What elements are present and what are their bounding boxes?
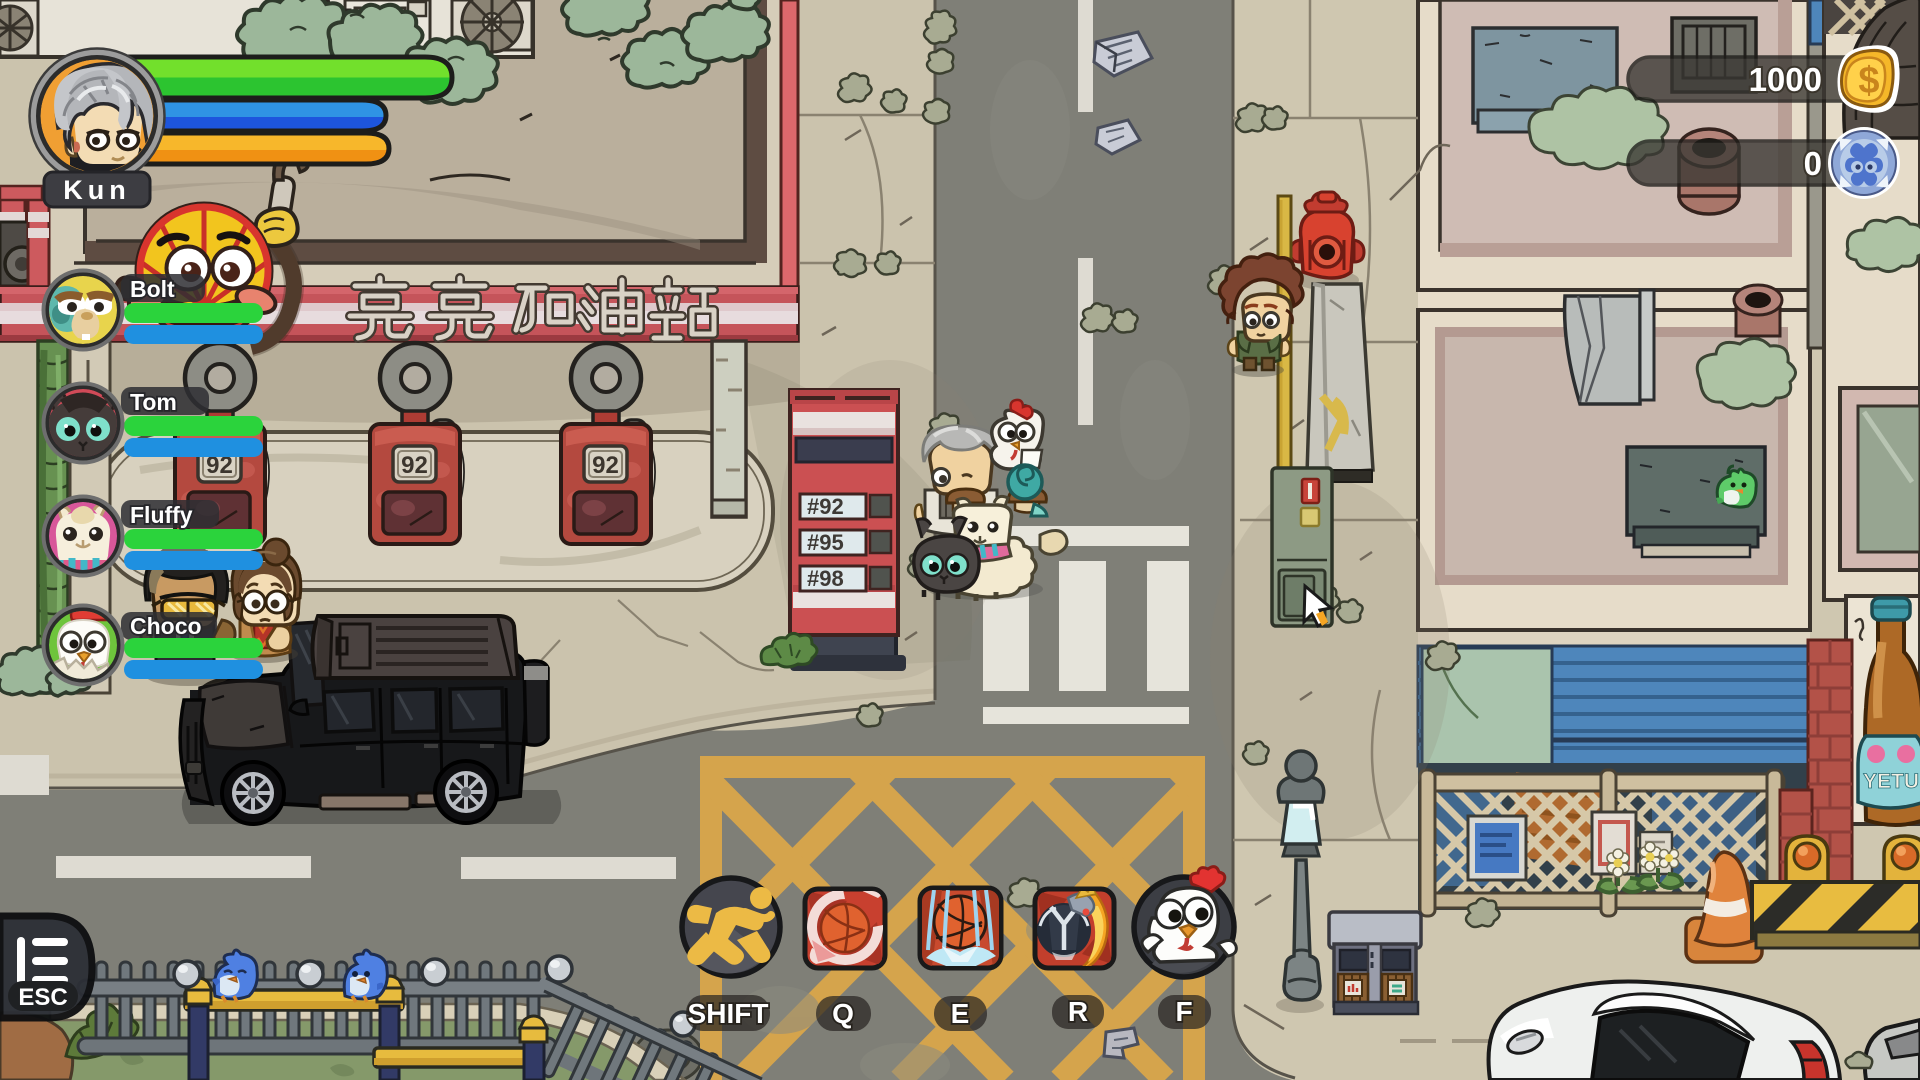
- svg-text:#92: #92: [807, 494, 844, 519]
- svg-text:R: R: [1068, 996, 1088, 1027]
- svg-text:Tom: Tom: [130, 389, 177, 415]
- svg-text:92: 92: [592, 452, 619, 479]
- svg-text:$: $: [1858, 60, 1879, 102]
- svg-text:0: 0: [1804, 145, 1822, 182]
- svg-text:YETU: YETU: [1863, 770, 1919, 793]
- svg-text:F: F: [1175, 996, 1192, 1027]
- svg-text:Bolt: Bolt: [130, 276, 175, 302]
- svg-text:ESC: ESC: [18, 984, 67, 1011]
- svg-text:Q: Q: [832, 998, 854, 1029]
- svg-text:#95: #95: [807, 530, 844, 555]
- svg-text:#98: #98: [807, 566, 844, 591]
- svg-text:Choco: Choco: [130, 613, 202, 639]
- svg-text:92: 92: [401, 452, 428, 479]
- svg-text:Kun: Kun: [63, 175, 130, 205]
- svg-text:SHIFT: SHIFT: [688, 998, 769, 1029]
- svg-text:Fluffy: Fluffy: [130, 502, 193, 528]
- svg-text:1000: 1000: [1749, 61, 1822, 98]
- svg-text:E: E: [951, 998, 970, 1029]
